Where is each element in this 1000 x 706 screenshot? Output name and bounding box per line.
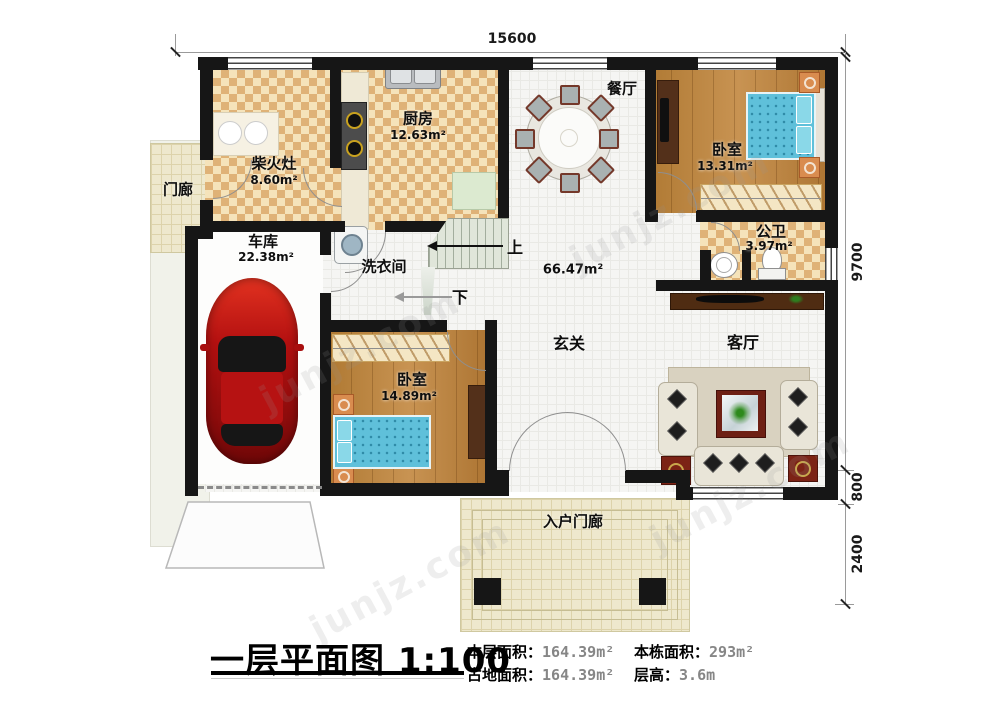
hall-area: 66.47m² [543, 263, 603, 278]
firewood-label: 柴火灶 [251, 153, 296, 174]
car [206, 278, 298, 464]
wall-bedroom-a-bottom-1 [645, 210, 658, 222]
wall-left-upper-1 [200, 57, 213, 160]
bedroom-b-nightstand-1 [333, 394, 354, 415]
porch-label: 门廊 [163, 179, 193, 200]
stat-value: 164.39m² [542, 666, 614, 684]
bedroom-a-label: 卧室 [712, 139, 742, 160]
bedroom-a-area: 13.31m² [697, 159, 753, 173]
kitchen-label: 厨房 [403, 108, 433, 129]
stove-burner-1 [346, 112, 363, 129]
bedroom-b-wardrobe [332, 334, 450, 362]
stove-burner-2 [346, 140, 363, 157]
cabinet-plant-icon [788, 294, 804, 304]
stat-label: 占地面积： [467, 666, 542, 684]
wall-left-garage [185, 226, 198, 496]
living-label: 客厅 [727, 329, 759, 353]
window-bottom-living [693, 487, 783, 500]
wall-right-2 [825, 288, 838, 500]
dim-800-label: 800 [850, 472, 866, 501]
tv-icon [696, 295, 764, 303]
car-mirror-right [294, 344, 304, 351]
wall-bottom-bedroom-b [320, 483, 509, 496]
dining-chair [515, 129, 535, 149]
firewood-pot-2 [244, 121, 268, 145]
bedroom-a-pillow-1 [796, 96, 812, 124]
floor-plan: 上 下 柴火灶 8.60m² 厨房 12.63m² 餐厅 门廊 车库 22.38… [0, 0, 1000, 706]
stairs-up-label: 上 [507, 234, 523, 258]
wall-living-top [656, 280, 838, 291]
garage-label: 车库 [248, 231, 278, 252]
dining-label: 餐厅 [607, 78, 637, 99]
side-table-right [788, 455, 818, 482]
wall-bedroom-a-left [645, 70, 656, 210]
car-rear-window [221, 424, 283, 446]
title-underline [211, 671, 464, 675]
dining-chair [599, 129, 619, 149]
entry-column-left [474, 578, 501, 605]
wall-firewood-kitchen [330, 70, 341, 168]
stat-value: 293m² [709, 643, 754, 661]
bedroom-a-wardrobe [700, 184, 822, 212]
car-mirror-left [200, 344, 210, 351]
wall-door-stub-left [497, 470, 509, 496]
stat-label: 本栋面积： [634, 643, 709, 661]
wall-left-step [185, 226, 213, 239]
dining-chair [560, 173, 580, 193]
stairs-down-label: 下 [452, 284, 468, 308]
firewood-pot-1 [218, 121, 242, 145]
wall-bathroom-left [700, 250, 711, 280]
wall-bedroom-b-right [485, 320, 497, 483]
car-windshield [218, 336, 286, 372]
stat-label: 本层面积： [467, 643, 542, 661]
stat-value: 164.39m² [542, 643, 614, 661]
wall-bathroom-mid [742, 250, 751, 280]
window-top-bedroom-a [698, 57, 776, 70]
bedroom-a-nightstand-1 [799, 72, 820, 93]
hall-label: 玄关 [553, 330, 585, 354]
bathroom-sink-bowl [716, 257, 732, 273]
kitchen-area: 12.63m² [390, 128, 446, 142]
dim-2400-label: 2400 [850, 535, 866, 574]
wall-kitchen-hall [498, 70, 509, 225]
stat-land-area: 占地面积：164.39m² [467, 664, 614, 685]
car-roof [221, 372, 283, 424]
wall-bedroom-b-top [320, 320, 447, 332]
stat-floor-height: 层高：3.6m [634, 664, 715, 685]
bedroom-b-pillow-1 [337, 420, 352, 441]
entry-porch-label: 入户门廊 [543, 511, 603, 532]
stairs-down-arrow [394, 292, 404, 302]
bedroom-a-nightstand-2 [799, 157, 820, 178]
wall-bottom-living-2 [783, 487, 838, 500]
bedroom-b-area: 14.89m² [381, 389, 437, 403]
bathroom-area: 3.97m² [745, 239, 792, 253]
stairs-up-line [437, 245, 503, 247]
title-underline-2 [211, 678, 464, 679]
bedroom-a-pillow-2 [796, 126, 812, 154]
stat-label: 层高： [634, 666, 679, 684]
dining-chair [560, 85, 580, 105]
kitchen-cabinet [452, 172, 496, 210]
stat-floor-area: 本层面积：164.39m² [467, 641, 614, 662]
dim-line-top [175, 52, 845, 53]
toilet-tank [758, 268, 786, 280]
bedroom-a-monitor [660, 98, 669, 142]
stat-value: 3.6m [679, 666, 715, 684]
bedroom-b-label: 卧室 [397, 369, 427, 390]
dim-width-label: 15600 [488, 31, 537, 47]
stairs-up-arrow [427, 241, 437, 251]
garage-driveway [160, 496, 340, 572]
bedroom-b-pillow-2 [337, 442, 352, 463]
dining-table-center [560, 129, 578, 147]
garage-area: 22.38m² [238, 250, 294, 264]
wall-garage-laundry-1 [320, 232, 331, 255]
table-plant-icon [728, 401, 752, 425]
laundry-label: 洗衣间 [361, 256, 406, 277]
wall-bottom-living-1 [676, 487, 693, 500]
window-top-firewood [228, 57, 312, 70]
entry-column-right [639, 578, 666, 605]
stat-building-area: 本栋面积：293m² [634, 641, 754, 662]
firewood-area: 8.60m² [250, 173, 297, 187]
window-top-dining [533, 57, 607, 70]
dim-depth-label: 9700 [850, 243, 866, 282]
garage-door-dashed [198, 486, 322, 489]
dim-line-right [845, 52, 846, 604]
wall-kitchen-bottom-1 [213, 221, 345, 232]
stairs-down-line [404, 296, 452, 298]
